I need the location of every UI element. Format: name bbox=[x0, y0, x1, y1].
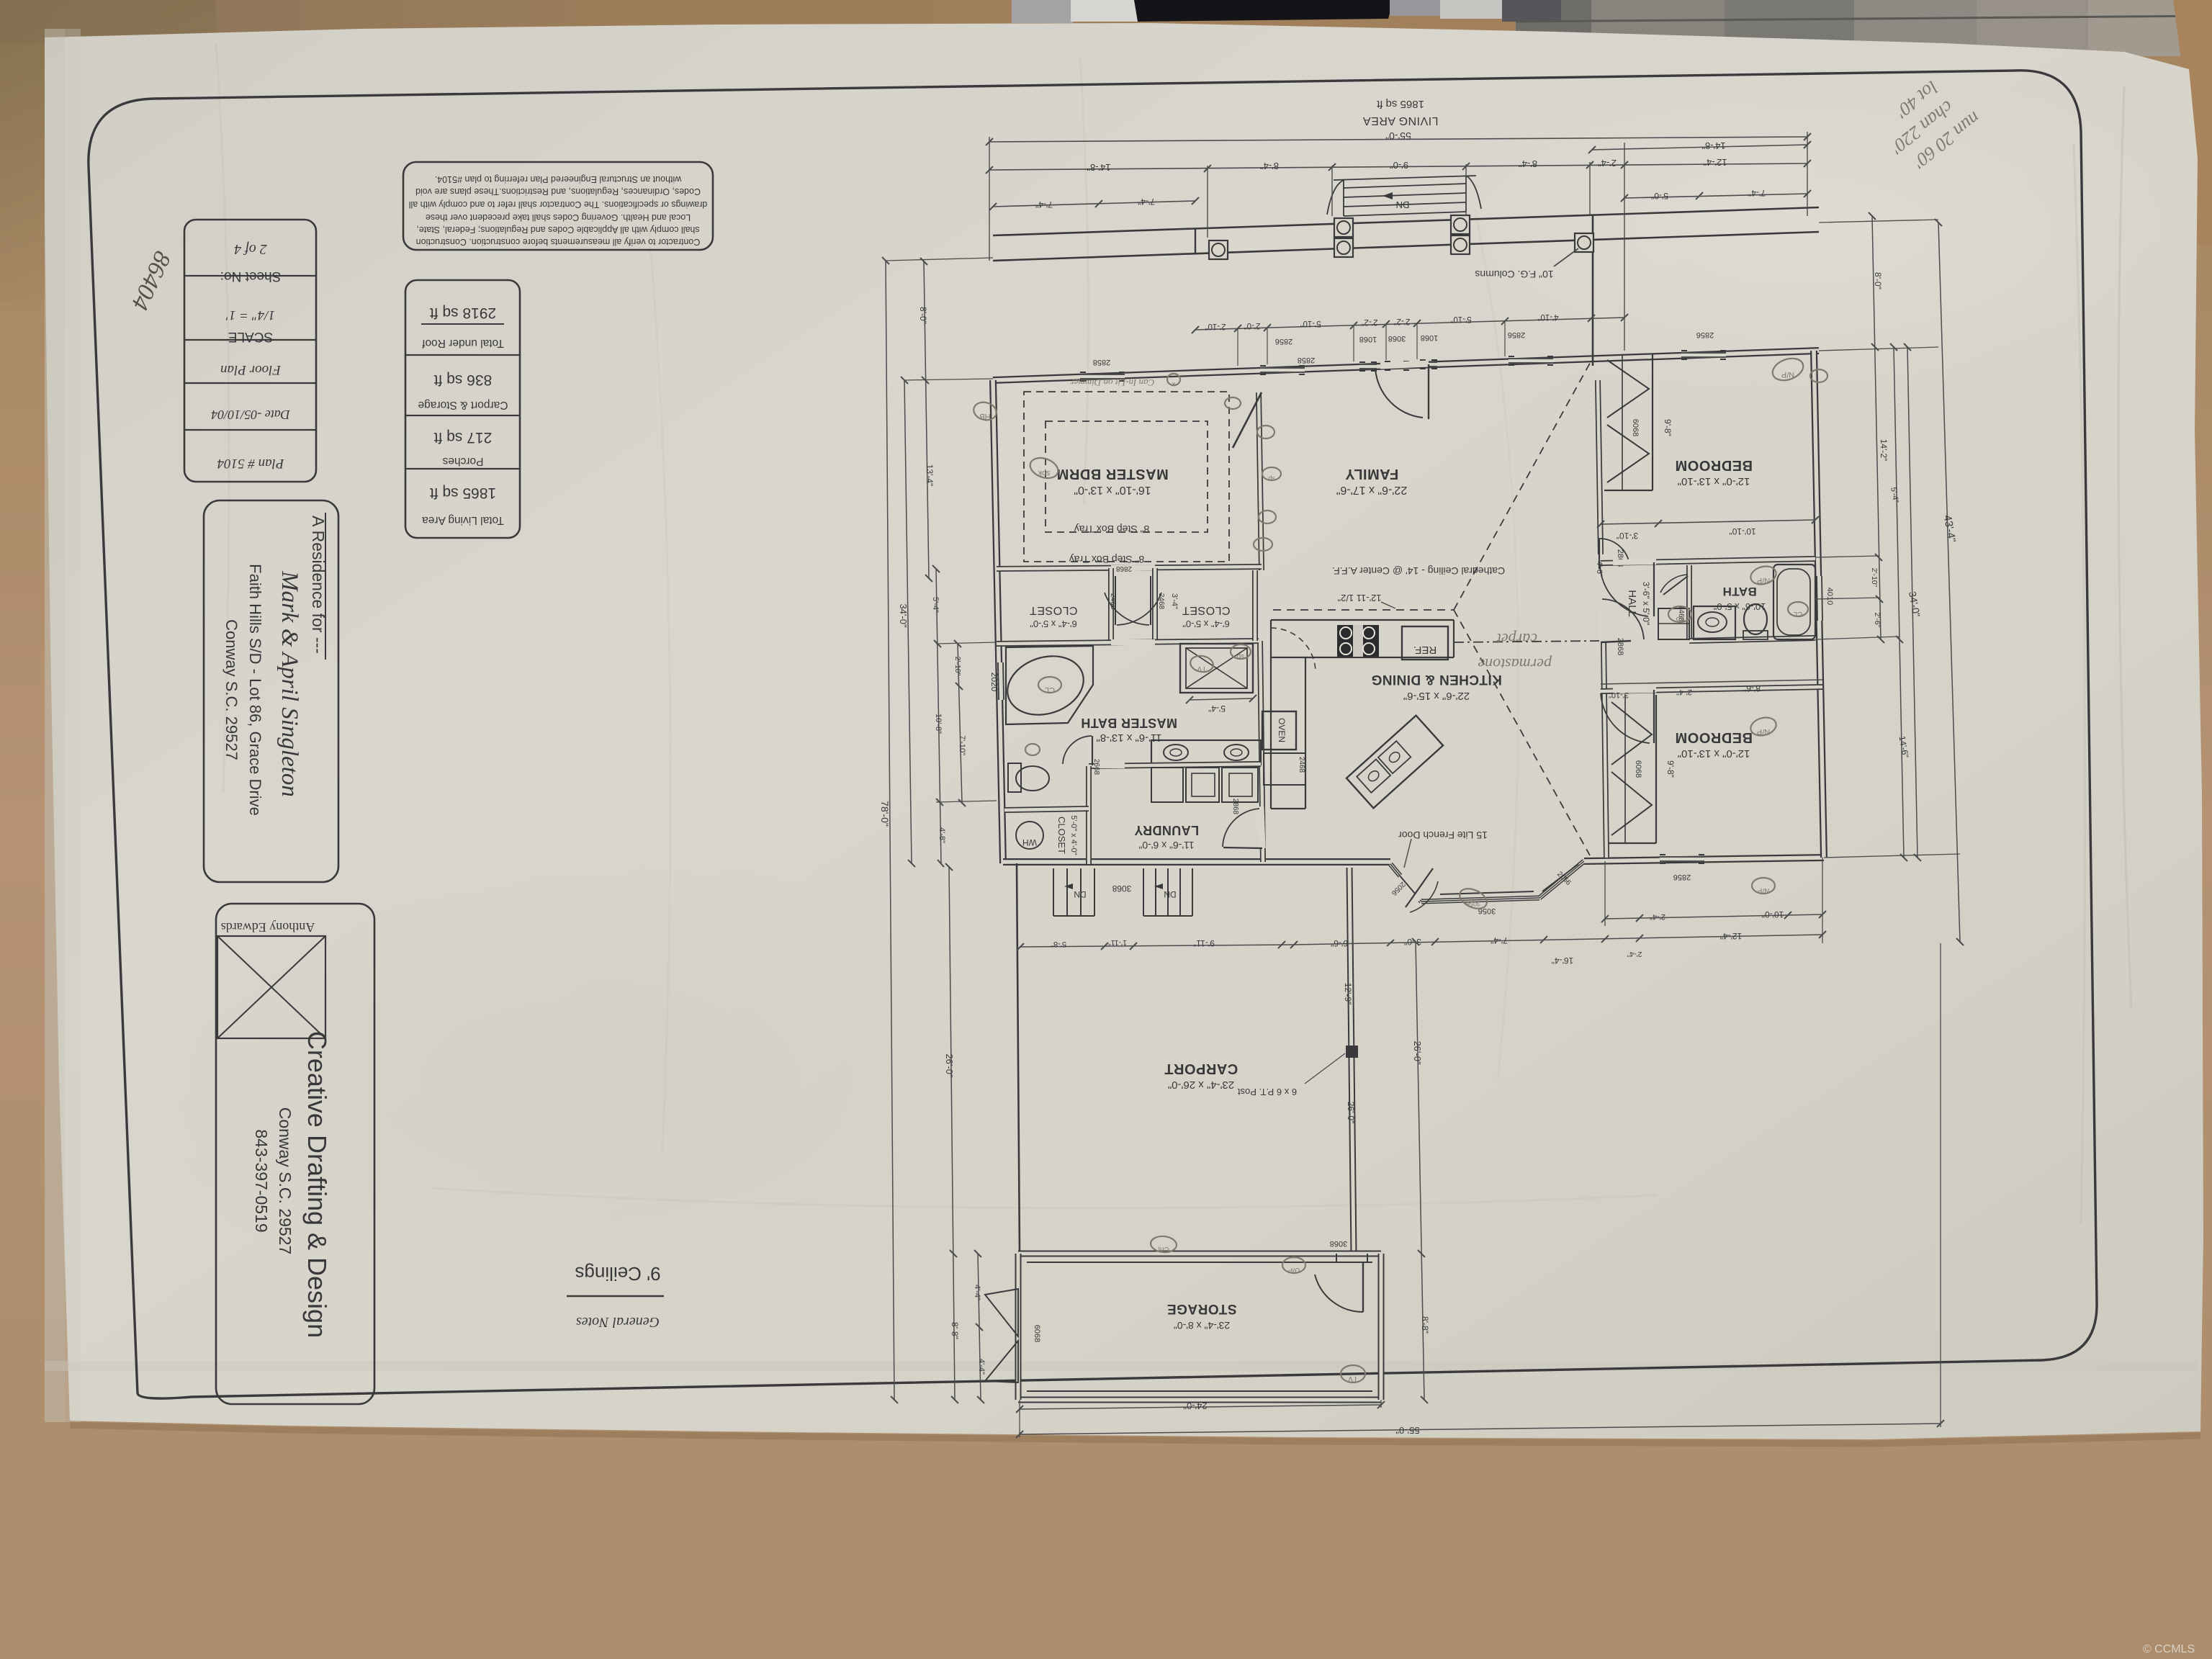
svg-text:55'-0": 55'-0" bbox=[1385, 130, 1411, 142]
svg-text:SCALE: SCALE bbox=[228, 329, 273, 344]
svg-text:10'-10": 10'-10" bbox=[1729, 526, 1755, 536]
svg-text:14'-8": 14'-8" bbox=[1087, 162, 1111, 173]
svg-text:4'-6": 4'-6" bbox=[1595, 561, 1604, 577]
svg-text:Conway S.C. 29527: Conway S.C. 29527 bbox=[276, 1107, 295, 1255]
svg-text:Cathedral Ceiling - 14' @ Cen: Cathedral Ceiling - 14' @ Center A.F.F. bbox=[1332, 565, 1505, 577]
svg-text:Can In-Lit on Dimmer: Can In-Lit on Dimmer bbox=[1070, 377, 1155, 388]
svg-text:16'-4": 16'-4" bbox=[1552, 956, 1574, 966]
svg-text:8'-6": 8'-6" bbox=[1743, 683, 1761, 693]
svg-text:8'-0": 8'-0" bbox=[918, 307, 928, 324]
svg-text:34'-0": 34'-0" bbox=[898, 603, 909, 628]
svg-text:8'-8": 8'-8" bbox=[950, 1322, 960, 1339]
svg-text:23'-4" x 26'-0": 23'-4" x 26'-0" bbox=[1168, 1079, 1234, 1091]
svg-text:BATH: BATH bbox=[1722, 585, 1757, 598]
svg-text:2468: 2468 bbox=[1109, 593, 1117, 610]
svg-text:Faith Hills S/D - Lot 86, Grac: Faith Hills S/D - Lot 86, Grace Drive bbox=[246, 564, 264, 816]
svg-text:2856: 2856 bbox=[1275, 337, 1292, 346]
svg-text:6 x 6 P.T. Post: 6 x 6 P.T. Post bbox=[1238, 1087, 1298, 1097]
svg-text:1865 sq ft: 1865 sq ft bbox=[1376, 98, 1424, 110]
svg-text:8'-4": 8'-4" bbox=[1260, 161, 1279, 171]
svg-text:drawings or specifications. Th: drawings or specifications. The Contract… bbox=[409, 199, 708, 210]
svg-text:3068: 3068 bbox=[1388, 334, 1406, 343]
svg-text:4010: 4010 bbox=[1825, 588, 1834, 605]
svg-text:2020: 2020 bbox=[989, 673, 999, 692]
svg-text:10'-0": 10'-0" bbox=[1762, 909, 1784, 920]
svg-text:8'-0": 8'-0" bbox=[1873, 272, 1883, 289]
svg-text:12'-4": 12'-4" bbox=[1703, 157, 1727, 168]
svg-text:3068: 3068 bbox=[1330, 1239, 1347, 1248]
svg-text:2856: 2856 bbox=[1696, 331, 1714, 339]
svg-text:4'-4": 4'-4" bbox=[977, 1359, 986, 1375]
svg-text:1/4" = 1': 1/4" = 1' bbox=[225, 307, 275, 323]
svg-text:Conway S.C. 29527: Conway S.C. 29527 bbox=[222, 619, 240, 760]
svg-text:5'-10": 5'-10" bbox=[1300, 319, 1321, 328]
svg-text:12'-4": 12'-4" bbox=[1720, 931, 1743, 941]
svg-text:7'-10": 7'-10" bbox=[958, 735, 966, 755]
svg-text:2868: 2868 bbox=[1231, 799, 1239, 815]
svg-text:10'-8": 10'-8" bbox=[934, 714, 943, 734]
svg-text:2'-10": 2'-10" bbox=[1870, 568, 1879, 588]
svg-text:5'-0" x 4'-0": 5'-0" x 4'-0" bbox=[1069, 815, 1078, 855]
svg-text:2918 sq ft: 2918 sq ft bbox=[430, 305, 496, 321]
svg-text:sp: sp bbox=[1268, 475, 1275, 482]
svg-text:CL: CL bbox=[1793, 610, 1802, 618]
svg-text:3056: 3056 bbox=[1466, 900, 1480, 907]
svg-text:Cnt: Cnt bbox=[1158, 1245, 1169, 1253]
svg-text:4'-10": 4'-10" bbox=[1537, 313, 1558, 321]
svg-text:TV: TV bbox=[1197, 665, 1206, 673]
svg-text:sp: sp bbox=[1236, 652, 1244, 660]
svg-text:12'-0" x 13'-10": 12'-0" x 13'-10" bbox=[1678, 747, 1750, 760]
svg-text:shall comply with all Applicab: shall comply with all Applicable Codes a… bbox=[416, 225, 699, 235]
svg-text:5'-0": 5'-0" bbox=[1651, 191, 1668, 201]
svg-text:9'-0": 9'-0" bbox=[1390, 160, 1408, 171]
svg-text:CLOSET: CLOSET bbox=[1182, 604, 1230, 616]
svg-text:1865 sq ft: 1865 sq ft bbox=[430, 485, 496, 501]
svg-text:843-397-0519: 843-397-0519 bbox=[252, 1129, 271, 1232]
svg-text:REF.: REF. bbox=[1413, 644, 1437, 656]
svg-text:9' Ceilings: 9' Ceilings bbox=[575, 1263, 660, 1285]
svg-text:2468: 2468 bbox=[1157, 593, 1165, 610]
svg-text:2468: 2468 bbox=[1298, 757, 1305, 773]
svg-text:6068: 6068 bbox=[1634, 760, 1642, 778]
svg-text:6068: 6068 bbox=[1631, 419, 1640, 436]
svg-text:78'-0": 78'-0" bbox=[879, 801, 891, 827]
svg-text:22'-6" x 17'-6": 22'-6" x 17'-6" bbox=[1336, 484, 1407, 496]
svg-text:2868: 2868 bbox=[1616, 638, 1624, 655]
svg-text:5'-10": 5'-10" bbox=[1450, 315, 1471, 323]
svg-text:24'-0": 24'-0" bbox=[1183, 1401, 1208, 1411]
svg-text:7'-4": 7'-4" bbox=[1748, 188, 1766, 198]
svg-text:2'-2": 2'-2" bbox=[1362, 318, 1378, 326]
svg-text:Anthony Edwards: Anthony Edwards bbox=[221, 920, 315, 935]
svg-text:8" Step Box Tray: 8" Step Box Tray bbox=[1069, 554, 1145, 565]
svg-text:FAMILY: FAMILY bbox=[1345, 466, 1399, 482]
svg-text:14'-8": 14'-8" bbox=[1701, 140, 1726, 151]
svg-text:KITCHEN & DINING: KITCHEN & DINING bbox=[1371, 672, 1502, 687]
svg-text:23'-4" x 8'-0": 23'-4" x 8'-0" bbox=[1174, 1320, 1230, 1331]
svg-text:9'-11": 9'-11" bbox=[1193, 938, 1215, 948]
svg-text:3068: 3068 bbox=[1112, 884, 1131, 894]
svg-text:6'-6": 6'-6" bbox=[1331, 938, 1348, 948]
svg-text:A Residence for ---: A Residence for --- bbox=[309, 516, 328, 654]
svg-text:DN: DN bbox=[1164, 889, 1176, 899]
svg-text:U/P: U/P bbox=[1287, 1266, 1300, 1274]
svg-text:Carport & Storage: Carport & Storage bbox=[418, 399, 508, 411]
svg-text:Plan # 5104: Plan # 5104 bbox=[217, 456, 284, 471]
svg-text:2856: 2856 bbox=[1673, 873, 1691, 881]
svg-text:STORAGE: STORAGE bbox=[1166, 1301, 1236, 1316]
svg-text:1068: 1068 bbox=[1359, 335, 1377, 343]
svg-text:1'-11": 1'-11" bbox=[1108, 938, 1127, 947]
svg-text:BEDROOM: BEDROOM bbox=[1675, 729, 1753, 745]
svg-text:14'-2": 14'-2" bbox=[1879, 439, 1889, 462]
svg-text:Total Living Area: Total Living Area bbox=[422, 514, 504, 526]
svg-text:N/P: N/P bbox=[1757, 727, 1770, 736]
svg-text:Total under Roof: Total under Roof bbox=[421, 337, 503, 349]
svg-text:2668: 2668 bbox=[1092, 759, 1100, 775]
svg-text:CLOSET: CLOSET bbox=[1056, 817, 1067, 854]
svg-text:217 sq ft: 217 sq ft bbox=[434, 429, 493, 446]
svg-text:3'-10": 3'-10" bbox=[1609, 691, 1629, 699]
svg-text:4'-8": 4'-8" bbox=[938, 827, 946, 843]
svg-text:8" Step Box Tray: 8" Step Box Tray bbox=[1074, 523, 1150, 535]
svg-text:2858: 2858 bbox=[1093, 358, 1110, 367]
svg-text:x: x bbox=[1172, 380, 1176, 388]
svg-text:5'-4": 5'-4" bbox=[1208, 703, 1226, 714]
svg-text:6'-4" x 5'-0": 6'-4" x 5'-0" bbox=[1182, 619, 1230, 629]
svg-text:3'-4": 3'-4" bbox=[1170, 593, 1179, 609]
svg-text:N/P: N/P bbox=[1781, 370, 1794, 379]
svg-text:9'-8": 9'-8" bbox=[1663, 419, 1673, 436]
svg-text:11'-6" x 13'-8": 11'-6" x 13'-8" bbox=[1096, 732, 1161, 744]
svg-text:3'-10": 3'-10" bbox=[1617, 531, 1639, 541]
svg-text:26'-0": 26'-0" bbox=[944, 1053, 955, 1078]
svg-text:11'-6" x 6'-0": 11'-6" x 6'-0" bbox=[1138, 840, 1194, 851]
svg-text:2'-4": 2'-4" bbox=[1627, 950, 1642, 958]
svg-text:HB: HB bbox=[979, 412, 990, 421]
svg-text:permastone: permastone bbox=[1478, 655, 1553, 673]
svg-text:836 sq ft: 836 sq ft bbox=[434, 372, 493, 388]
svg-text:26'-0": 26'-0" bbox=[1412, 1040, 1423, 1065]
svg-text:2'-10": 2'-10" bbox=[953, 657, 962, 676]
svg-text:N/P: N/P bbox=[1757, 576, 1770, 585]
svg-text:LIVING AREA: LIVING AREA bbox=[1362, 114, 1438, 127]
svg-text:5'-8": 5'-8" bbox=[1051, 940, 1066, 948]
svg-text:7'-4": 7'-4" bbox=[1138, 197, 1155, 207]
svg-text:2'-4": 2'-4" bbox=[1676, 688, 1692, 696]
svg-text:spk: spk bbox=[1038, 469, 1051, 477]
svg-text:N/P: N/P bbox=[1757, 886, 1769, 894]
svg-text:without an Structural Enginee: without an Structural Engineered Plan re… bbox=[435, 174, 683, 184]
svg-text:8'-4": 8'-4" bbox=[1519, 158, 1537, 169]
svg-text:2'-0": 2'-0" bbox=[1244, 321, 1261, 330]
svg-text:10'-6" x 5'-0": 10'-6" x 5'-0" bbox=[1713, 601, 1766, 612]
svg-text:2868: 2868 bbox=[1115, 565, 1132, 572]
svg-text:HALL: HALL bbox=[1626, 590, 1638, 617]
svg-text:9'-8": 9'-8" bbox=[1665, 760, 1676, 778]
svg-text:WH: WH bbox=[1022, 837, 1037, 848]
svg-text:TV: TV bbox=[1347, 1375, 1358, 1383]
svg-text:Codes, Ordinances, Regulations: Codes, Ordinances, Regulations, and Rest… bbox=[415, 186, 701, 197]
svg-text:Porches: Porches bbox=[442, 455, 483, 467]
svg-text:CLOSET: CLOSET bbox=[1029, 604, 1077, 616]
svg-text:OVEN: OVEN bbox=[1277, 718, 1287, 742]
svg-text:2'-4": 2'-4" bbox=[1598, 158, 1617, 168]
svg-text:Creative Drafting & Design: Creative Drafting & Design bbox=[302, 1031, 332, 1338]
svg-text:12'-9": 12'-9" bbox=[1343, 983, 1353, 1005]
svg-text:DN: DN bbox=[1074, 889, 1086, 899]
svg-text:10" F.G. Columns: 10" F.G. Columns bbox=[1475, 269, 1553, 280]
svg-text:carpet: carpet bbox=[1496, 630, 1537, 648]
svg-text:Mark & April Singleton: Mark & April Singleton bbox=[276, 570, 302, 797]
svg-text:BEDROOM: BEDROOM bbox=[1675, 457, 1753, 473]
svg-text:4'-4": 4'-4" bbox=[973, 1285, 981, 1300]
svg-text:© CCMLS: © CCMLS bbox=[2143, 1643, 2195, 1655]
svg-text:sp: sp bbox=[1676, 615, 1683, 623]
svg-text:Date -05/10/04: Date -05/10/04 bbox=[211, 408, 291, 422]
svg-text:13'-4": 13'-4" bbox=[925, 464, 935, 487]
svg-text:26'-0": 26'-0" bbox=[1346, 1102, 1356, 1124]
svg-text:Contractor to verify all measu: Contractor to verify all measurements be… bbox=[416, 237, 701, 247]
svg-text:2'-10": 2'-10" bbox=[1205, 322, 1226, 331]
svg-text:Local and Health. Govering Cod: Local and Health. Govering Codes shall t… bbox=[426, 212, 691, 222]
svg-text:5'-4": 5'-4" bbox=[931, 597, 940, 613]
svg-text:12'-11 1/2": 12'-11 1/2" bbox=[1337, 593, 1381, 603]
svg-text:55'-0": 55'-0" bbox=[1395, 1425, 1420, 1436]
svg-text:2'-4": 2'-4" bbox=[1650, 912, 1665, 921]
svg-text:DN: DN bbox=[1396, 199, 1410, 210]
svg-text:MASTER BDRM: MASTER BDRM bbox=[1056, 466, 1169, 482]
svg-text:2858: 2858 bbox=[1298, 356, 1315, 364]
svg-text:8'-8": 8'-8" bbox=[1420, 1316, 1430, 1334]
svg-text:7'-4": 7'-4" bbox=[1035, 199, 1053, 210]
svg-text:2856: 2856 bbox=[1508, 331, 1525, 339]
svg-text:Floor Plan: Floor Plan bbox=[220, 362, 282, 377]
svg-text:2 of 4: 2 of 4 bbox=[234, 241, 267, 257]
svg-text:General Notes: General Notes bbox=[576, 1314, 660, 1330]
svg-text:Sheet No:: Sheet No: bbox=[220, 269, 282, 284]
svg-text:CARPORT: CARPORT bbox=[1164, 1061, 1238, 1076]
svg-text:22'-6" x 15'-6": 22'-6" x 15'-6" bbox=[1403, 690, 1470, 702]
svg-text:7'-4": 7'-4" bbox=[1491, 935, 1508, 945]
svg-text:6068: 6068 bbox=[1033, 1325, 1041, 1342]
svg-text:16'-10" x 13'-0": 16'-10" x 13'-0" bbox=[1074, 484, 1151, 496]
svg-text:LAUNDRY: LAUNDRY bbox=[1134, 823, 1199, 837]
svg-text:MASTER BATH: MASTER BATH bbox=[1081, 716, 1177, 730]
svg-text:CL: CL bbox=[1045, 685, 1055, 694]
svg-text:2'-2": 2'-2" bbox=[1394, 317, 1411, 325]
svg-text:1068: 1068 bbox=[1421, 333, 1438, 342]
svg-text:12'-0" x 13'-10": 12'-0" x 13'-10" bbox=[1678, 475, 1750, 487]
svg-text:2'-6": 2'-6" bbox=[1873, 613, 1881, 628]
svg-text:3'-6" x 5'-0": 3'-6" x 5'-0" bbox=[1641, 582, 1651, 625]
svg-text:6'-4" x 5'-0": 6'-4" x 5'-0" bbox=[1030, 619, 1077, 629]
